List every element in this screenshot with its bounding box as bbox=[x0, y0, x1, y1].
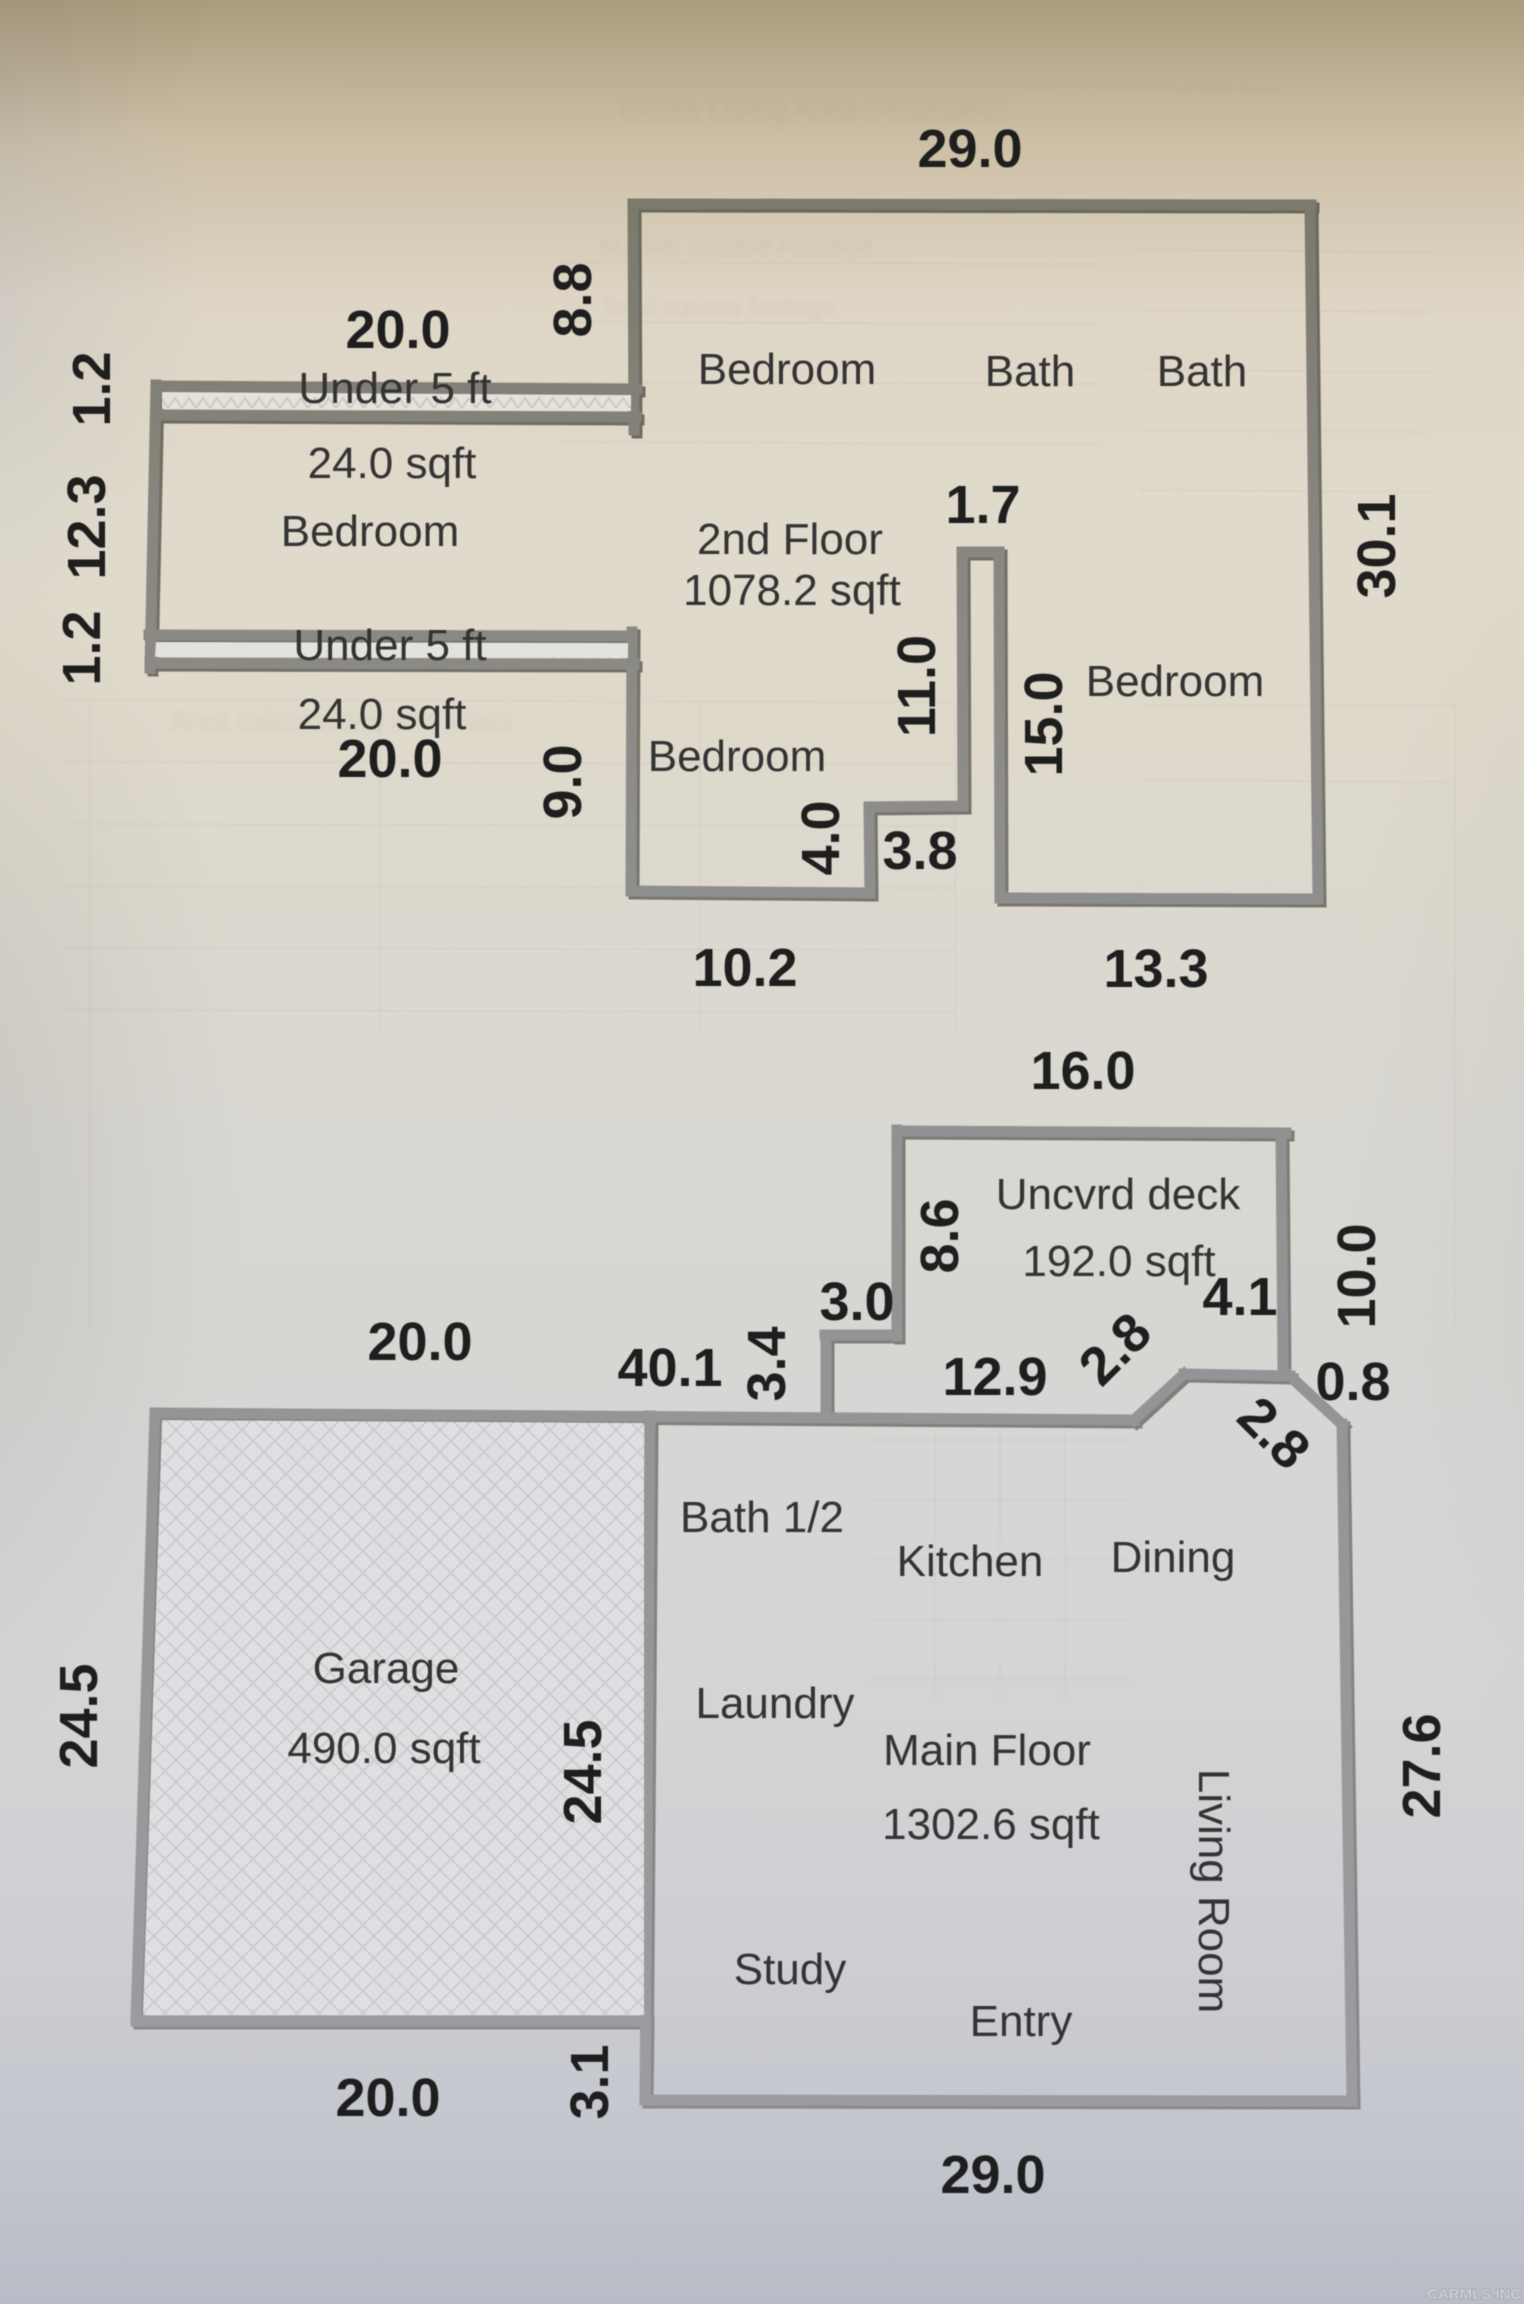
svg-text:192.0 sqft: 192.0 sqft bbox=[1022, 1237, 1215, 1286]
svg-text:Living Room: Living Room bbox=[1189, 1769, 1238, 2014]
svg-text:24.0 sqft: 24.0 sqft bbox=[308, 439, 477, 488]
svg-text:Bedroom: Bedroom bbox=[698, 345, 877, 394]
svg-text:11.0: 11.0 bbox=[887, 635, 947, 737]
svg-text:3.4: 3.4 bbox=[737, 1326, 797, 1401]
svg-text:2.8: 2.8 bbox=[1068, 1302, 1164, 1398]
svg-text:8.6: 8.6 bbox=[910, 1198, 970, 1273]
svg-text:Entry: Entry bbox=[970, 1997, 1073, 2046]
svg-text:Bedroom: Bedroom bbox=[648, 732, 827, 781]
svg-text:2nd Floor: 2nd Floor bbox=[697, 515, 883, 564]
svg-text:1078.2 sqft: 1078.2 sqft bbox=[683, 566, 901, 615]
svg-text:13.3: 13.3 bbox=[1103, 939, 1208, 999]
svg-text:9.0: 9.0 bbox=[533, 744, 593, 819]
svg-text:4.1: 4.1 bbox=[1202, 1267, 1277, 1327]
svg-text:27.6: 27.6 bbox=[1392, 1713, 1452, 1818]
svg-text:29.0: 29.0 bbox=[940, 2145, 1045, 2205]
svg-text:20.0: 20.0 bbox=[335, 2068, 440, 2128]
svg-text:20.0: 20.0 bbox=[345, 300, 450, 360]
svg-text:3.8: 3.8 bbox=[882, 821, 957, 881]
svg-text:3.0: 3.0 bbox=[819, 1272, 894, 1332]
svg-text:12.9: 12.9 bbox=[942, 1347, 1047, 1407]
svg-text:0.8: 0.8 bbox=[1315, 1352, 1390, 1412]
svg-text:10.0: 10.0 bbox=[1327, 1223, 1387, 1328]
svg-text:Uncvrd deck: Uncvrd deck bbox=[996, 1170, 1242, 1219]
svg-text:30.1: 30.1 bbox=[1347, 493, 1407, 598]
svg-text:Bedroom: Bedroom bbox=[1086, 657, 1265, 706]
svg-text:Under 5 ft: Under 5 ft bbox=[298, 364, 491, 413]
svg-text:29.0: 29.0 bbox=[917, 119, 1022, 179]
svg-text:24.5: 24.5 bbox=[49, 1663, 109, 1768]
svg-text:20.0: 20.0 bbox=[367, 1312, 472, 1372]
svg-text:1.2: 1.2 bbox=[52, 610, 112, 685]
svg-text:Garage: Garage bbox=[313, 1644, 460, 1693]
svg-text:490.0 sqft: 490.0 sqft bbox=[287, 1724, 480, 1773]
svg-text:Bath: Bath bbox=[1157, 347, 1248, 396]
svg-text:40.1: 40.1 bbox=[617, 1338, 722, 1398]
svg-text:Bedroom: Bedroom bbox=[281, 507, 460, 556]
svg-text:Bath: Bath bbox=[985, 347, 1076, 396]
svg-text:1.2: 1.2 bbox=[62, 351, 122, 426]
svg-text:Study: Study bbox=[734, 1945, 847, 1994]
svg-text:Laundry: Laundry bbox=[695, 1679, 854, 1728]
svg-text:8.8: 8.8 bbox=[543, 262, 603, 337]
svg-text:Under 5 ft: Under 5 ft bbox=[293, 621, 486, 670]
svg-text:15.0: 15.0 bbox=[1014, 671, 1074, 776]
svg-text:24.0 sqft: 24.0 sqft bbox=[298, 690, 467, 739]
svg-text:Dining: Dining bbox=[1111, 1533, 1236, 1582]
svg-text:12.3: 12.3 bbox=[57, 474, 117, 579]
svg-text:Kitchen: Kitchen bbox=[897, 1537, 1044, 1586]
svg-text:2.8: 2.8 bbox=[1226, 1386, 1322, 1482]
svg-text:10.2: 10.2 bbox=[692, 938, 797, 998]
svg-text:24.5: 24.5 bbox=[553, 1719, 613, 1824]
svg-text:3.1: 3.1 bbox=[560, 2044, 620, 2119]
svg-text:1.7: 1.7 bbox=[945, 475, 1020, 535]
svg-text:Main Floor: Main Floor bbox=[883, 1726, 1091, 1775]
svg-text:4.0: 4.0 bbox=[791, 800, 851, 875]
svg-text:16.0: 16.0 bbox=[1030, 1041, 1135, 1101]
svg-text:CARMLS INC: CARMLS INC bbox=[1427, 2286, 1521, 2303]
svg-text:Bath 1/2: Bath 1/2 bbox=[680, 1493, 844, 1542]
svg-text:1302.6 sqft: 1302.6 sqft bbox=[882, 1800, 1100, 1849]
